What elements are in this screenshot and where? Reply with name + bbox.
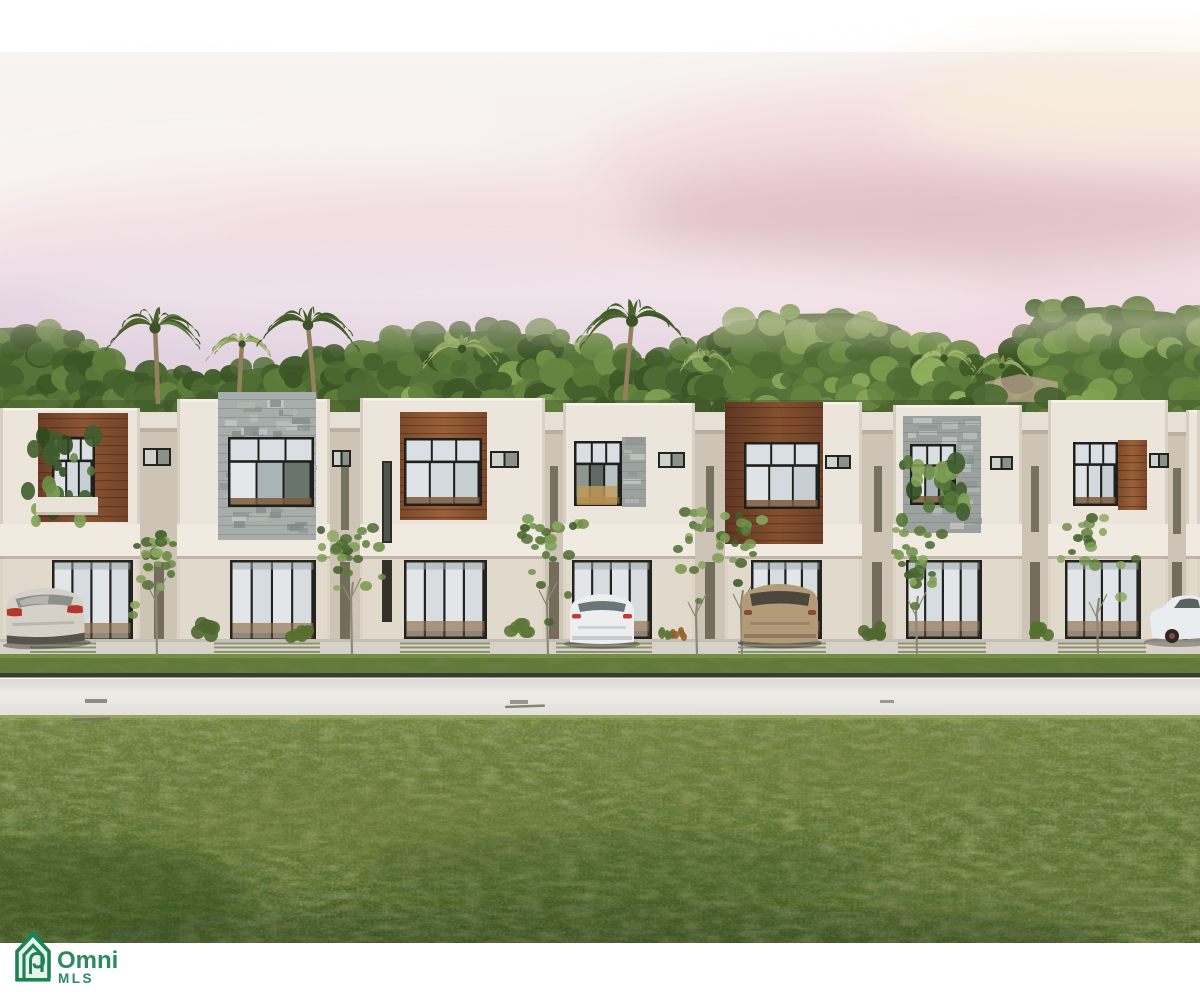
svg-text:MLS: MLS bbox=[58, 971, 94, 986]
svg-text:Omni: Omni bbox=[57, 947, 118, 974]
